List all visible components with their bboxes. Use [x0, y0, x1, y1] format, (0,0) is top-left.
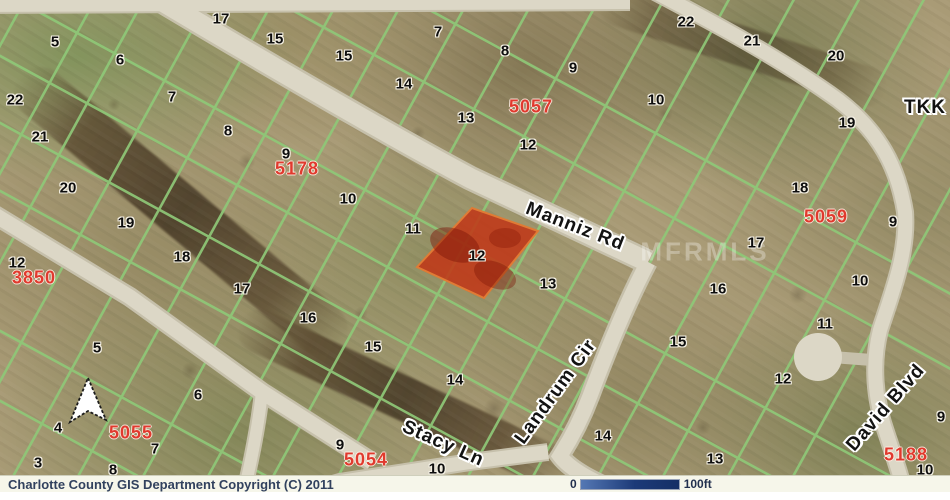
block-number-label: 3850 — [12, 268, 56, 289]
block-number-label: 5057 — [509, 97, 553, 118]
lot-number-label: 22 — [7, 92, 24, 109]
copyright-text: Charlotte County GIS Department Copyrigh… — [8, 477, 334, 492]
lot-number-label: 14 — [396, 76, 413, 93]
lot-number-label: 12 — [469, 248, 486, 265]
lot-number-label: 19 — [118, 215, 135, 232]
map-features — [0, 0, 950, 475]
aerial-map[interactable]: MFRMLS 171556789222120151478131222211019… — [0, 0, 950, 475]
block-number-label: 5055 — [109, 423, 153, 444]
lot-number-label: 21 — [32, 129, 49, 146]
lot-number-label: 15 — [365, 339, 382, 356]
lot-number-label: 14 — [447, 372, 464, 389]
lot-number-label: 8 — [224, 123, 232, 140]
lot-number-label: 8 — [501, 43, 509, 60]
lot-number-label: 15 — [267, 31, 284, 48]
lot-number-label: 9 — [569, 60, 577, 77]
lot-number-label: 9 — [336, 437, 344, 454]
lot-number-label: 3 — [34, 455, 42, 472]
cul-de-sac — [794, 333, 842, 381]
lot-number-label: 12 — [520, 137, 537, 154]
block-number-label: 5188 — [884, 445, 928, 466]
lot-number-label: 20 — [60, 180, 77, 197]
lot-number-label: 10 — [648, 92, 665, 109]
lot-number-label: 15 — [336, 48, 353, 65]
lot-number-label: 18 — [174, 249, 191, 266]
status-bar: Charlotte County GIS Department Copyrigh… — [0, 475, 950, 492]
lot-number-label: 16 — [710, 281, 727, 298]
lot-number-label: 14 — [595, 428, 612, 445]
lot-number-label: 10 — [852, 273, 869, 290]
lot-number-label: 7 — [168, 89, 176, 106]
block-number-label: 5059 — [804, 207, 848, 228]
lot-number-label: 8 — [109, 462, 117, 476]
gis-map-viewer: MFRMLS 171556789222120151478131222211019… — [0, 0, 950, 500]
lot-number-label: 15 — [670, 334, 687, 351]
lot-number-label: 17 — [748, 235, 765, 252]
lot-number-label: 21 — [744, 33, 761, 50]
lot-number-label: 11 — [405, 221, 421, 238]
lot-number-label: 18 — [792, 180, 809, 197]
lot-number-label: 7 — [434, 24, 442, 41]
lot-number-label: 5 — [51, 34, 59, 51]
lot-number-label: 19 — [839, 115, 856, 132]
lot-number-label: 20 — [828, 48, 845, 65]
lot-number-label: 17 — [234, 281, 251, 298]
lot-number-label: 10 — [340, 191, 357, 208]
block-number-label: 5054 — [344, 450, 388, 471]
lot-number-label: 5 — [93, 340, 101, 357]
lot-number-label: 13 — [540, 276, 557, 293]
lot-number-label: 9 — [889, 214, 897, 231]
lot-number-label: 9 — [937, 409, 945, 426]
lot-number-label: 6 — [116, 52, 124, 69]
lot-number-label: 16 — [300, 310, 317, 327]
lot-number-label: 17 — [213, 11, 230, 28]
scale-zero-label: 0 — [570, 477, 577, 491]
lot-number-label: 13 — [707, 451, 724, 468]
block-number-label: 5178 — [275, 159, 319, 180]
lot-number-label: 22 — [678, 14, 695, 31]
lot-number-label: 13 — [458, 110, 475, 127]
lot-number-label: 10 — [429, 461, 446, 476]
lot-number-label: 11 — [817, 316, 833, 333]
road-name-label: TKK — [904, 97, 946, 119]
bottom-margin — [0, 492, 950, 500]
lot-number-label: 12 — [775, 371, 792, 388]
lot-number-label: 6 — [194, 387, 202, 404]
lot-number-label: 4 — [54, 420, 62, 437]
scale-distance-label: 100ft — [684, 477, 712, 491]
scale-bar — [580, 479, 680, 490]
scale-bar-group: 0 100ft — [570, 476, 712, 492]
